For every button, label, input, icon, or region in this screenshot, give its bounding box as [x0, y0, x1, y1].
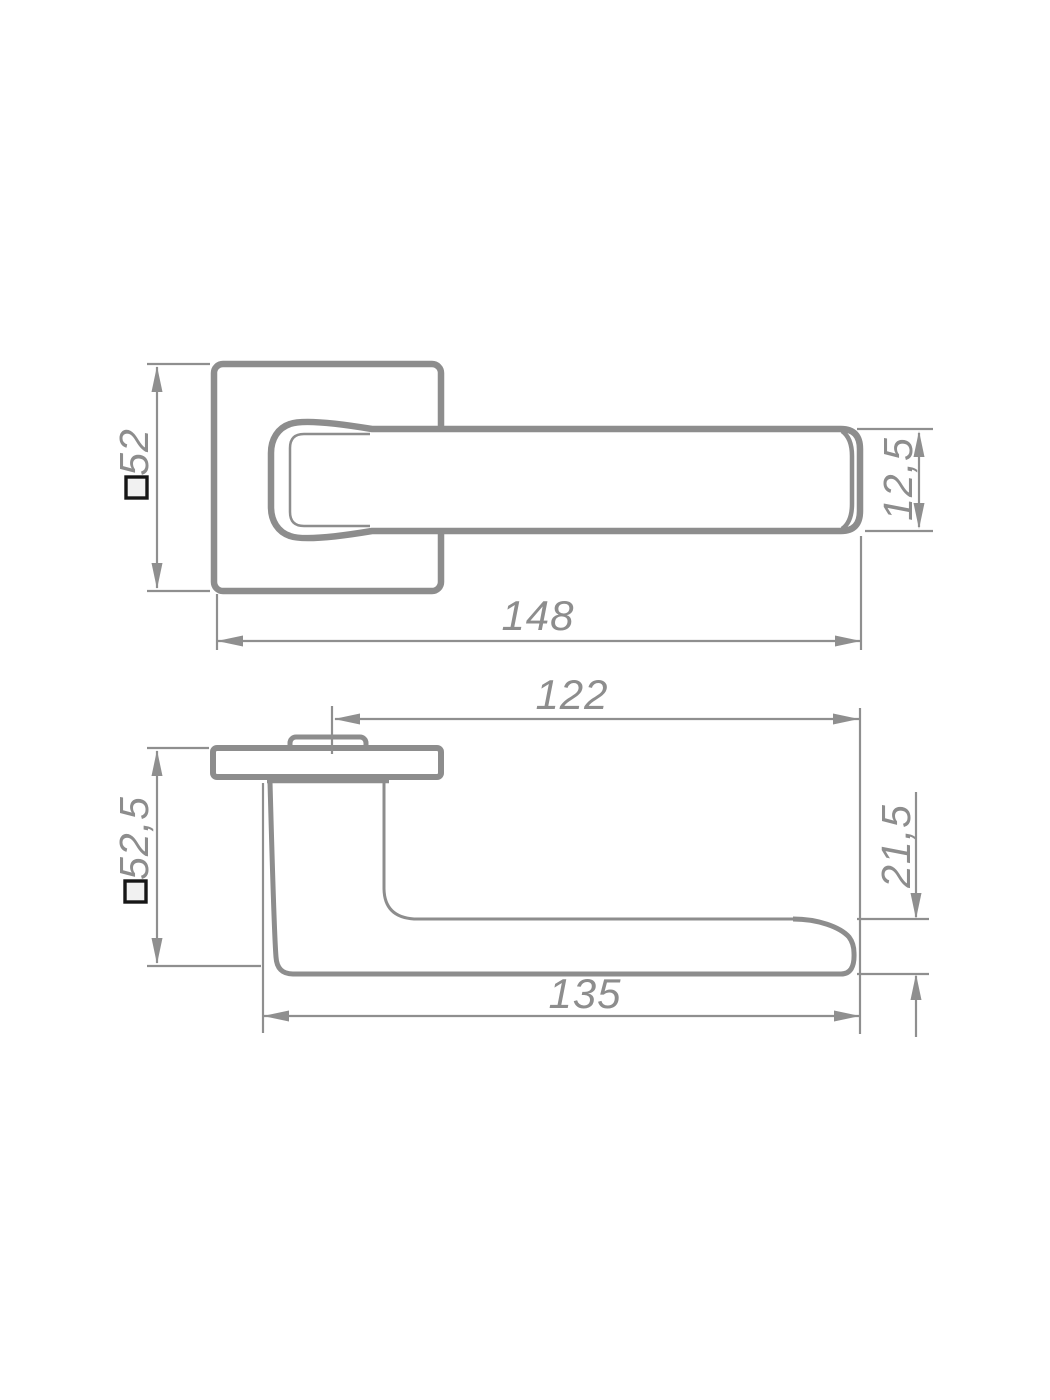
arrowhead-right: [834, 1011, 860, 1022]
front-view: 52 12,5 148: [111, 364, 933, 650]
arrowhead-left: [334, 714, 360, 725]
dimension-label: 12,5: [875, 437, 921, 521]
dimension-thickness-12-5: 12,5: [857, 429, 933, 531]
arrowhead-down: [152, 938, 163, 964]
front-lever-outline: [271, 422, 860, 538]
square-section-symbol-icon: [125, 881, 146, 902]
dimension-label: 122: [535, 671, 608, 718]
drawing-sheet: 52 12,5 148: [0, 0, 1050, 1400]
dimension-length-135: 135: [263, 970, 860, 1022]
arrowhead-down: [911, 893, 922, 919]
arrowhead-down: [152, 563, 163, 589]
dimension-height-21-5: 21,5: [857, 792, 929, 1037]
technical-drawing: 52 12,5 148: [0, 0, 1050, 1400]
dimension-label: 52,5: [111, 796, 157, 880]
side-grip-inner-contour: [384, 782, 793, 919]
square-section-symbol-icon: [126, 477, 147, 498]
dimension-label: 135: [548, 970, 621, 1017]
dimension-projection-122: 122: [332, 671, 859, 754]
dimension-rosette-52: 52: [111, 364, 210, 591]
arrowhead-left: [217, 636, 243, 647]
dimension-label: 52: [111, 428, 157, 476]
dimension-label: 148: [501, 592, 574, 639]
side-view: 122 52,5 21,5 135: [111, 671, 929, 1037]
dimension-label: 21,5: [873, 804, 919, 889]
side-rosette-outline: [213, 748, 441, 777]
arrowhead-left: [263, 1011, 289, 1022]
arrowhead-up: [152, 750, 163, 776]
arrowhead-right: [835, 636, 861, 647]
side-grip-outer-contour: [270, 782, 854, 974]
arrowhead-right: [833, 714, 859, 725]
arrowhead-up: [152, 366, 163, 392]
dimension-rosette-52-5: 52,5: [111, 748, 261, 966]
arrowhead-up: [911, 974, 922, 1000]
